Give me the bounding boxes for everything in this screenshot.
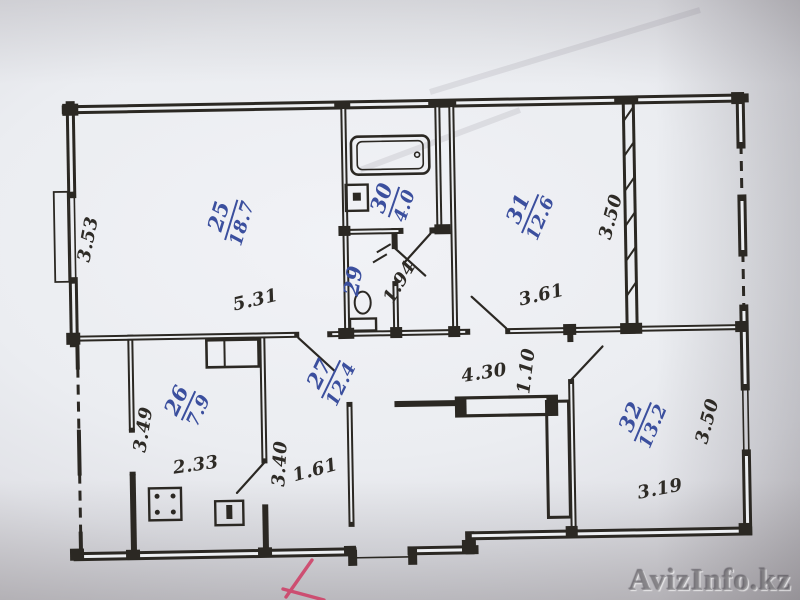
bathtub-symbol xyxy=(351,135,430,174)
dim-3-61: 3.61 xyxy=(517,280,566,311)
dim-3-19: 3.19 xyxy=(636,474,685,503)
dim-5-31: 5.31 xyxy=(231,285,280,316)
closet-symbol xyxy=(206,339,258,367)
room-label-31: 31 12.6 xyxy=(497,182,559,243)
plan-drawing: 25 18.7 30 4.0 29 31 12.6 26 7.9 27 12.4 xyxy=(52,92,752,571)
svg-text:3.40: 3.40 xyxy=(268,440,291,487)
svg-text:4.30: 4.30 xyxy=(460,359,509,387)
stove-symbol xyxy=(149,488,182,521)
hatched-wall xyxy=(623,100,637,329)
svg-text:1.10: 1.10 xyxy=(513,347,539,395)
svg-text:3.50: 3.50 xyxy=(691,396,723,446)
sink-symbol xyxy=(215,501,243,525)
svg-text:2.33: 2.33 xyxy=(171,452,220,479)
room-label-25: 25 18.7 xyxy=(200,190,259,248)
dim-3-50-room31: 3.50 xyxy=(595,192,627,242)
svg-text:3.50: 3.50 xyxy=(595,192,627,242)
svg-text:3.19: 3.19 xyxy=(636,474,685,503)
dim-2-33: 2.33 xyxy=(171,452,220,479)
svg-text:1.61: 1.61 xyxy=(290,454,340,486)
room-label-26: 26 7.9 xyxy=(158,380,215,430)
floor-plan: 25 18.7 30 4.0 29 31 12.6 26 7.9 27 12.4 xyxy=(0,0,800,600)
hall-closet-walls xyxy=(456,396,570,519)
toilet-symbol xyxy=(350,291,377,330)
room-label-29: 29 xyxy=(338,264,368,299)
svg-text:1.94: 1.94 xyxy=(379,257,421,307)
dim-4-30: 4.30 xyxy=(460,359,509,387)
room-label-30: 30 4.0 xyxy=(364,178,420,225)
svg-text:3.53: 3.53 xyxy=(73,215,102,264)
paper-creases xyxy=(360,10,700,170)
dim-1-10: 1.10 xyxy=(513,347,539,395)
svg-text:5.31: 5.31 xyxy=(231,285,280,316)
room-label-32: 32 13.2 xyxy=(610,391,672,452)
dim-1-94: 1.94 xyxy=(379,257,421,307)
dim-1-61: 1.61 xyxy=(290,454,340,486)
red-pen-mark xyxy=(283,560,324,600)
dim-3-40: 3.40 xyxy=(268,440,291,487)
dim-3-50-room32: 3.50 xyxy=(691,396,723,446)
entrance-door xyxy=(348,549,417,566)
dim-3-53: 3.53 xyxy=(73,215,102,264)
tick-marks xyxy=(373,244,391,262)
room-number: 29 xyxy=(338,264,368,299)
svg-text:3.61: 3.61 xyxy=(517,280,566,311)
room-label-27: 27 12.4 xyxy=(298,347,361,409)
watermark: AvizInfo.kz xyxy=(629,562,792,598)
